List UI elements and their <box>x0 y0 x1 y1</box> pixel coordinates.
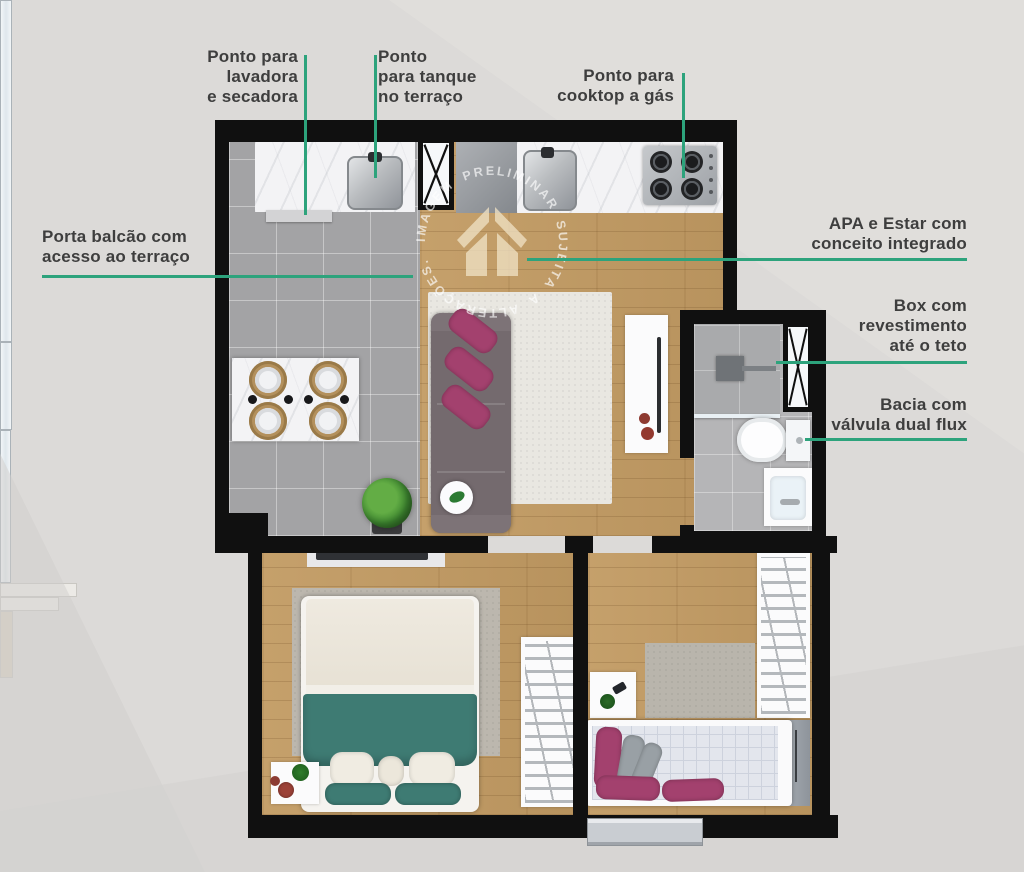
callout-line: conceito integrado <box>811 234 967 254</box>
bedroom1-wardrobe <box>521 637 577 807</box>
bedroom1-tv <box>316 552 428 560</box>
bed-pillow-white <box>409 752 455 786</box>
burner <box>650 151 672 173</box>
bed-pillow-white <box>330 752 374 786</box>
wall-bottom <box>248 815 838 838</box>
bathroom-door <box>0 611 13 678</box>
daybed-cushion <box>662 778 725 802</box>
shower-arm <box>742 366 776 371</box>
wall-bathroom-bottom <box>680 531 826 545</box>
callout-line: Ponto para <box>557 66 674 86</box>
wardrobe-hangers <box>525 641 573 803</box>
plate <box>255 367 281 393</box>
dual-flush-button <box>796 437 803 444</box>
wardrobe-hangers <box>761 557 806 714</box>
bed-duvet <box>306 599 474 699</box>
plate <box>315 367 341 393</box>
leader-tank <box>374 55 377 178</box>
wall-bedroom-divider <box>573 553 588 818</box>
gas-cooktop <box>643 146 717 205</box>
callout-line: revestimento <box>859 316 967 336</box>
callout-line: Porta balcão com <box>42 227 190 247</box>
callout-line: Ponto <box>378 47 477 67</box>
bedroom2-window <box>587 818 703 846</box>
table-plant <box>292 764 309 781</box>
bedroom2-door <box>0 597 59 611</box>
wall-bathroom-left <box>680 525 694 545</box>
knob <box>709 166 713 170</box>
bathroom-faucet <box>780 499 800 505</box>
kitchen-faucet <box>541 147 554 158</box>
place-setting <box>249 402 287 440</box>
knob <box>709 190 713 194</box>
leader-washer-dryer <box>304 55 307 215</box>
decor-object <box>641 427 654 440</box>
wall-bathroom-right <box>812 310 826 545</box>
knob <box>709 154 713 158</box>
bed-pillow-roll <box>378 756 404 786</box>
wall-middle <box>565 536 593 553</box>
plate <box>255 408 281 434</box>
bathroom-sink <box>770 476 806 520</box>
callout-line: Ponto para <box>207 47 298 67</box>
place-setting <box>249 361 287 399</box>
bedroom2-desk <box>590 672 636 718</box>
callout-line: no terraço <box>378 87 477 107</box>
wall-right-kitchen <box>723 120 737 316</box>
sofa-seam <box>437 471 505 473</box>
cup <box>248 395 257 404</box>
fridge <box>456 140 517 213</box>
callout-line: Box com <box>859 296 967 316</box>
cup <box>304 395 313 404</box>
sofa-armrest <box>431 515 511 533</box>
decor-plate <box>278 782 294 798</box>
leader-cooktop <box>682 73 685 178</box>
bedroom2-wardrobe <box>757 553 810 718</box>
leader-balcony-door <box>42 275 413 278</box>
leader-dual-flush <box>805 438 967 441</box>
callout-shower-box: Box com revestimento até o teto <box>859 296 967 356</box>
shaft-window-kitchen <box>418 138 454 210</box>
callout-line: lavadora <box>207 67 298 87</box>
shower-head <box>716 356 744 381</box>
callout-tank: Ponto para tanque no terraço <box>378 47 477 107</box>
callout-balcony-door: Porta balcão com acesso ao terraço <box>42 227 190 267</box>
callout-apa-living: APA e Estar com conceito integrado <box>811 214 967 254</box>
leader-shower-box <box>776 361 967 364</box>
bedroom1-door <box>0 583 77 597</box>
wall-right-lower <box>812 545 830 825</box>
decor-object <box>639 413 650 424</box>
callout-line: cooktop a gás <box>557 86 674 106</box>
callout-line: até o teto <box>859 336 967 356</box>
bedroom2-rug <box>645 643 755 718</box>
callout-line: Bacia com <box>831 395 967 415</box>
callout-line: e secadora <box>207 87 298 107</box>
entry-door <box>0 342 12 430</box>
shaft-x-glyph <box>423 143 449 205</box>
shaft-window-bathroom <box>783 322 813 412</box>
wall-left-upper <box>215 120 229 553</box>
desk-plant <box>600 694 615 709</box>
cup <box>284 395 293 404</box>
wall-bathroom-left <box>680 310 694 458</box>
floor-plan-image: IMAGEM PRELIMINAR SUJEITA A ALTERAÇÕES. … <box>0 0 1024 872</box>
toilet-bowl <box>737 418 787 462</box>
washer-dryer-slot <box>266 210 332 222</box>
cup <box>340 395 349 404</box>
daybed-cushion <box>596 775 661 801</box>
cabinet-handle <box>795 730 797 782</box>
bed-pillow-teal <box>395 783 461 805</box>
bedroom1-window <box>0 430 11 583</box>
place-setting <box>309 402 347 440</box>
plate <box>315 408 341 434</box>
callout-cooktop: Ponto para cooktop a gás <box>557 66 674 106</box>
callout-line: acesso ao terraço <box>42 247 190 267</box>
decor-plate <box>270 776 280 786</box>
potted-plant <box>362 478 412 528</box>
shaft-x-glyph <box>788 327 808 407</box>
bed-pillow-teal <box>325 783 391 805</box>
wall-top <box>215 120 737 142</box>
burner <box>681 178 703 200</box>
callout-line: para tanque <box>378 67 477 87</box>
wall-left-lower <box>248 538 262 838</box>
callout-dual-flush: Bacia com válvula dual flux <box>831 395 967 435</box>
place-setting <box>309 361 347 399</box>
callout-washer-dryer: Ponto para lavadora e secadora <box>207 47 298 107</box>
tv <box>657 337 661 433</box>
burner <box>650 178 672 200</box>
balcony-glass-door <box>0 0 12 342</box>
kitchen-sink <box>523 150 577 211</box>
leader-apa-living <box>527 258 967 261</box>
callout-line: válvula dual flux <box>831 415 967 435</box>
callout-line: APA e Estar com <box>811 214 967 234</box>
knob <box>709 178 713 182</box>
